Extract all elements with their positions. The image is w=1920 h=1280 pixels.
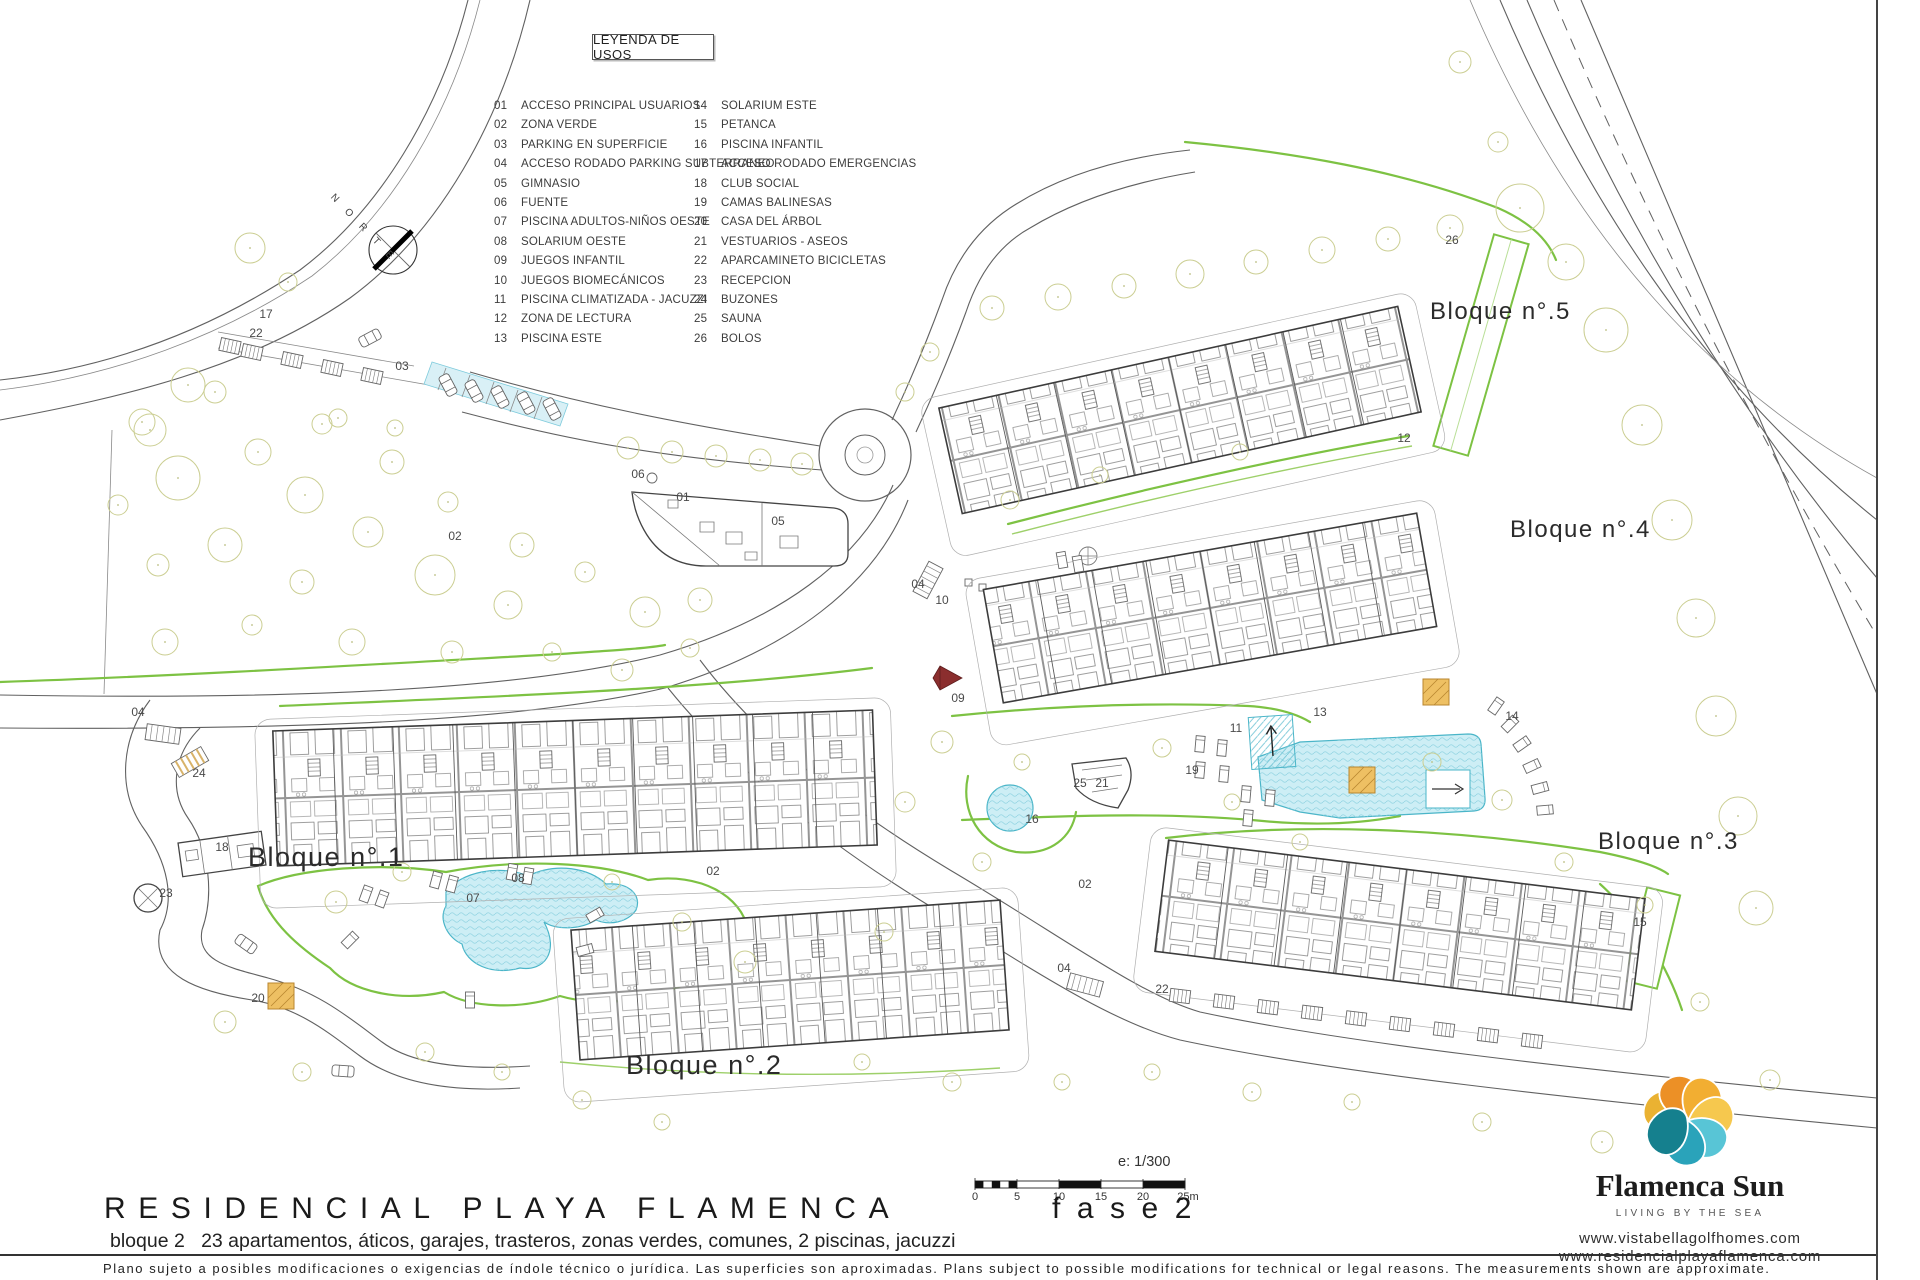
legend-item: 15PETANCA [694,116,916,135]
legend-item-label: JUEGOS INFANTIL [521,255,625,267]
legend-item-number: 14 [694,97,721,116]
legend-item: 22APARCAMINETO BICICLETAS [694,252,916,271]
legend-item-label: CLUB SOCIAL [721,178,799,190]
legend-item-number: 18 [694,175,721,194]
use-number-marker: 11 [1230,721,1242,735]
scale-tick-label: 5 [1014,1191,1020,1203]
project-title: RESIDENCIAL PLAYA FLAMENCA [104,1192,901,1226]
legend-item-number: 20 [694,213,721,232]
legend-item-label: PARKING EN SUPERFICIE [521,139,667,151]
use-number-marker: 04 [911,577,924,591]
legend-item-number: 08 [494,233,521,252]
legend-item: 24BUZONES [694,291,916,310]
legend-item-number: 03 [494,136,521,155]
block-label: Bloque n°.1 [248,842,404,873]
brand-tagline: LIVING BY THE SEA [1525,1208,1855,1219]
legend-item-number: 02 [494,116,521,135]
use-number-marker: 06 [631,467,644,481]
legend-item-label: BUZONES [721,294,778,306]
legend-item-label: PETANCA [721,119,776,131]
legend-item: 19CAMAS BALINESAS [694,194,916,213]
use-number-marker: 17 [259,307,272,321]
legend-item-label: SAUNA [721,313,762,325]
legend-item-label: ACCESO PRINCIPAL USUARIOS [521,100,700,112]
legend-item-label: SOLARIUM ESTE [721,100,817,112]
legend-item-number: 04 [494,155,521,174]
legend-item-label: FUENTE [521,197,568,209]
brand-website-1[interactable]: www.vistabellagolfhomes.com [1525,1230,1855,1247]
legend-item-label: BOLOS [721,333,762,345]
legend-item-number: 07 [494,213,521,232]
legend-item-number: 16 [694,136,721,155]
legend-item-label: GIMNASIO [521,178,580,190]
use-number-marker: 26 [1445,233,1458,247]
phase-label: fase2 [1052,1192,1208,1226]
legend-item-label: ZONA DE LECTURA [521,313,631,325]
use-number-marker: 04 [1057,961,1070,975]
legend-item: 20CASA DEL ÁRBOL [694,213,916,232]
block-label: Bloque n°.5 [1430,298,1571,326]
use-number-marker: 25 [1073,776,1086,790]
legend-item-number: 21 [694,233,721,252]
use-number-marker: 24 [192,766,205,780]
use-number-marker: 14 [1505,709,1518,723]
legal-disclaimer: Plano sujeto a posibles modificaciones o… [103,1261,1770,1276]
use-number-marker: 05 [771,514,784,528]
legend-item-label: RECEPCION [721,275,791,287]
use-number-marker: 23 [159,886,172,900]
sheet-frame-right [1876,0,1878,1280]
block-label: Bloque n°.3 [1598,828,1739,856]
legend-item-label: PISCINA INFANTIL [721,139,823,151]
use-number-marker: 03 [395,359,408,373]
use-number-marker: 22 [1155,982,1168,996]
legend-column-2: 14SOLARIUM ESTE 15PETANCA 16PISCINA INFA… [694,97,916,349]
legend-item-number: 09 [494,252,521,271]
scale-ratio: e: 1/300 [1118,1154,1170,1170]
use-number-marker: 04 [131,705,144,719]
legend-item-label: JUEGOS BIOMECÁNICOS [521,275,665,287]
legend-item-label: APARCAMINETO BICICLETAS [721,255,886,267]
legend-item-label: PISCINA ADULTOS-NIÑOS OESTE [521,216,710,228]
use-number-marker: 20 [251,991,264,1005]
legend-item-label: SOLARIUM OESTE [521,236,626,248]
legend-item: 23RECEPCION [694,272,916,291]
legend-item-number: 13 [494,330,521,349]
use-number-marker: 09 [951,691,964,705]
use-number-marker: 19 [1185,763,1198,777]
use-number-marker: 10 [935,593,948,607]
use-number-marker: 08 [511,871,524,885]
legend-item: 26BOLOS [694,330,916,349]
legend-item-number: 25 [694,310,721,329]
block-label: Bloque n°.4 [1510,516,1651,544]
legend-item-label: PISCINA ESTE [521,333,602,345]
legend-item: 17ACCESO RODADO EMERGENCIAS [694,155,916,174]
legend-item-number: 22 [694,252,721,271]
use-number-marker: 15 [1633,915,1646,929]
legend-item-number: 26 [694,330,721,349]
use-number-marker: 22 [249,326,262,340]
use-number-marker: 07 [466,891,479,905]
legend-item: 14SOLARIUM ESTE [694,97,916,116]
legend-item: 18CLUB SOCIAL [694,175,916,194]
use-number-marker: 13 [1313,705,1326,719]
legend-item-label: CASA DEL ÁRBOL [721,216,822,228]
legend-item-label: PISCINA CLIMATIZADA - JACUZZI [521,294,707,306]
legend-item-label: ZONA VERDE [521,119,597,131]
brand-website-2[interactable]: www.residencialplayaflamenca.com [1525,1248,1855,1265]
scale-tick-label: 0 [972,1191,978,1203]
legend-item: 16PISCINA INFANTIL [694,136,916,155]
use-number-marker: 21 [1095,776,1108,790]
legend-item-label: ACCESO RODADO EMERGENCIAS [721,158,916,170]
legend-item-number: 17 [694,155,721,174]
brand-name: Flamenca Sun [1525,1168,1855,1204]
legend-item: 25SAUNA [694,310,916,329]
legend-item-number: 15 [694,116,721,135]
legend-item-number: 11 [494,291,521,310]
use-number-marker: 02 [1078,877,1091,891]
legend-item-label: VESTUARIOS - ASEOS [721,236,848,248]
site-plan-sheet: LEYENDA DE USOS 01ACCESO PRINCIPAL USUAR… [0,0,1920,1280]
use-number-marker: 02 [448,529,461,543]
use-number-marker: 12 [1397,431,1410,445]
project-subtitle: bloque 2 23 apartamentos, áticos, garaje… [110,1230,955,1253]
use-number-marker: 18 [215,840,228,854]
block-label: Bloque n°.2 [626,1050,782,1081]
legend-item-number: 05 [494,175,521,194]
legend-item-number: 24 [694,291,721,310]
legend-item-number: 19 [694,194,721,213]
legend-item-number: 01 [494,97,521,116]
legend-item: 21VESTUARIOS - ASEOS [694,233,916,252]
legend-item-number: 12 [494,310,521,329]
legend-item-number: 10 [494,272,521,291]
legend-title: LEYENDA DE USOS [592,34,714,60]
legend-item-number: 23 [694,272,721,291]
use-number-marker: 01 [676,490,689,504]
use-number-marker: 16 [1025,812,1038,826]
flamenca-sun-logo-icon [1632,1066,1744,1174]
use-number-marker: 02 [706,864,719,878]
legend-item-number: 06 [494,194,521,213]
legend-item-label: CAMAS BALINESAS [721,197,832,209]
